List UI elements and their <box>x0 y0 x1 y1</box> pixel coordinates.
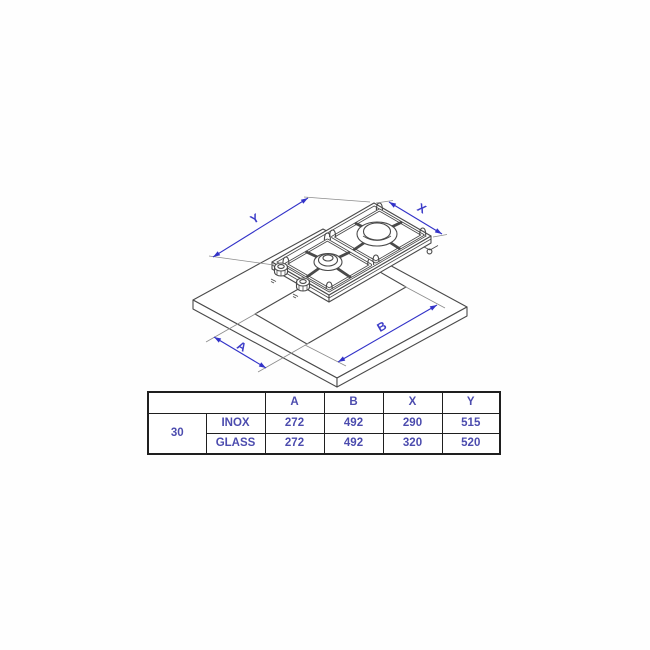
value-cell: 492 <box>324 414 383 434</box>
dim-label-y: Y <box>248 210 262 226</box>
table-header-row: A B X Y <box>148 392 500 414</box>
size-cell: 30 <box>148 414 206 455</box>
dim-label-x: X <box>415 200 429 216</box>
dim-label-a: A <box>235 338 250 355</box>
table-header-y: Y <box>442 392 500 414</box>
table-row-inox: 30 INOX 272 492 290 515 <box>148 414 500 434</box>
table-header-b: B <box>324 392 383 414</box>
table-header-empty <box>148 392 265 414</box>
material-cell: GLASS <box>206 434 265 455</box>
dimensions-table: A B X Y 30 INOX 272 492 290 515 GLASS 27… <box>147 391 501 455</box>
value-cell: 290 <box>383 414 442 434</box>
value-cell: 520 <box>442 434 500 455</box>
fixing-bracket <box>424 246 438 254</box>
table-header-x: X <box>383 392 442 414</box>
page: A B <box>0 0 650 650</box>
value-cell: 320 <box>383 434 442 455</box>
material-cell: INOX <box>206 414 265 434</box>
value-cell: 492 <box>324 434 383 455</box>
value-cell: 272 <box>265 414 324 434</box>
burner-small <box>314 254 342 271</box>
table-header-a: A <box>265 392 324 414</box>
installation-diagram: A B <box>0 0 650 650</box>
burner-large <box>357 222 397 246</box>
value-cell: 272 <box>265 434 324 455</box>
value-cell: 515 <box>442 414 500 434</box>
